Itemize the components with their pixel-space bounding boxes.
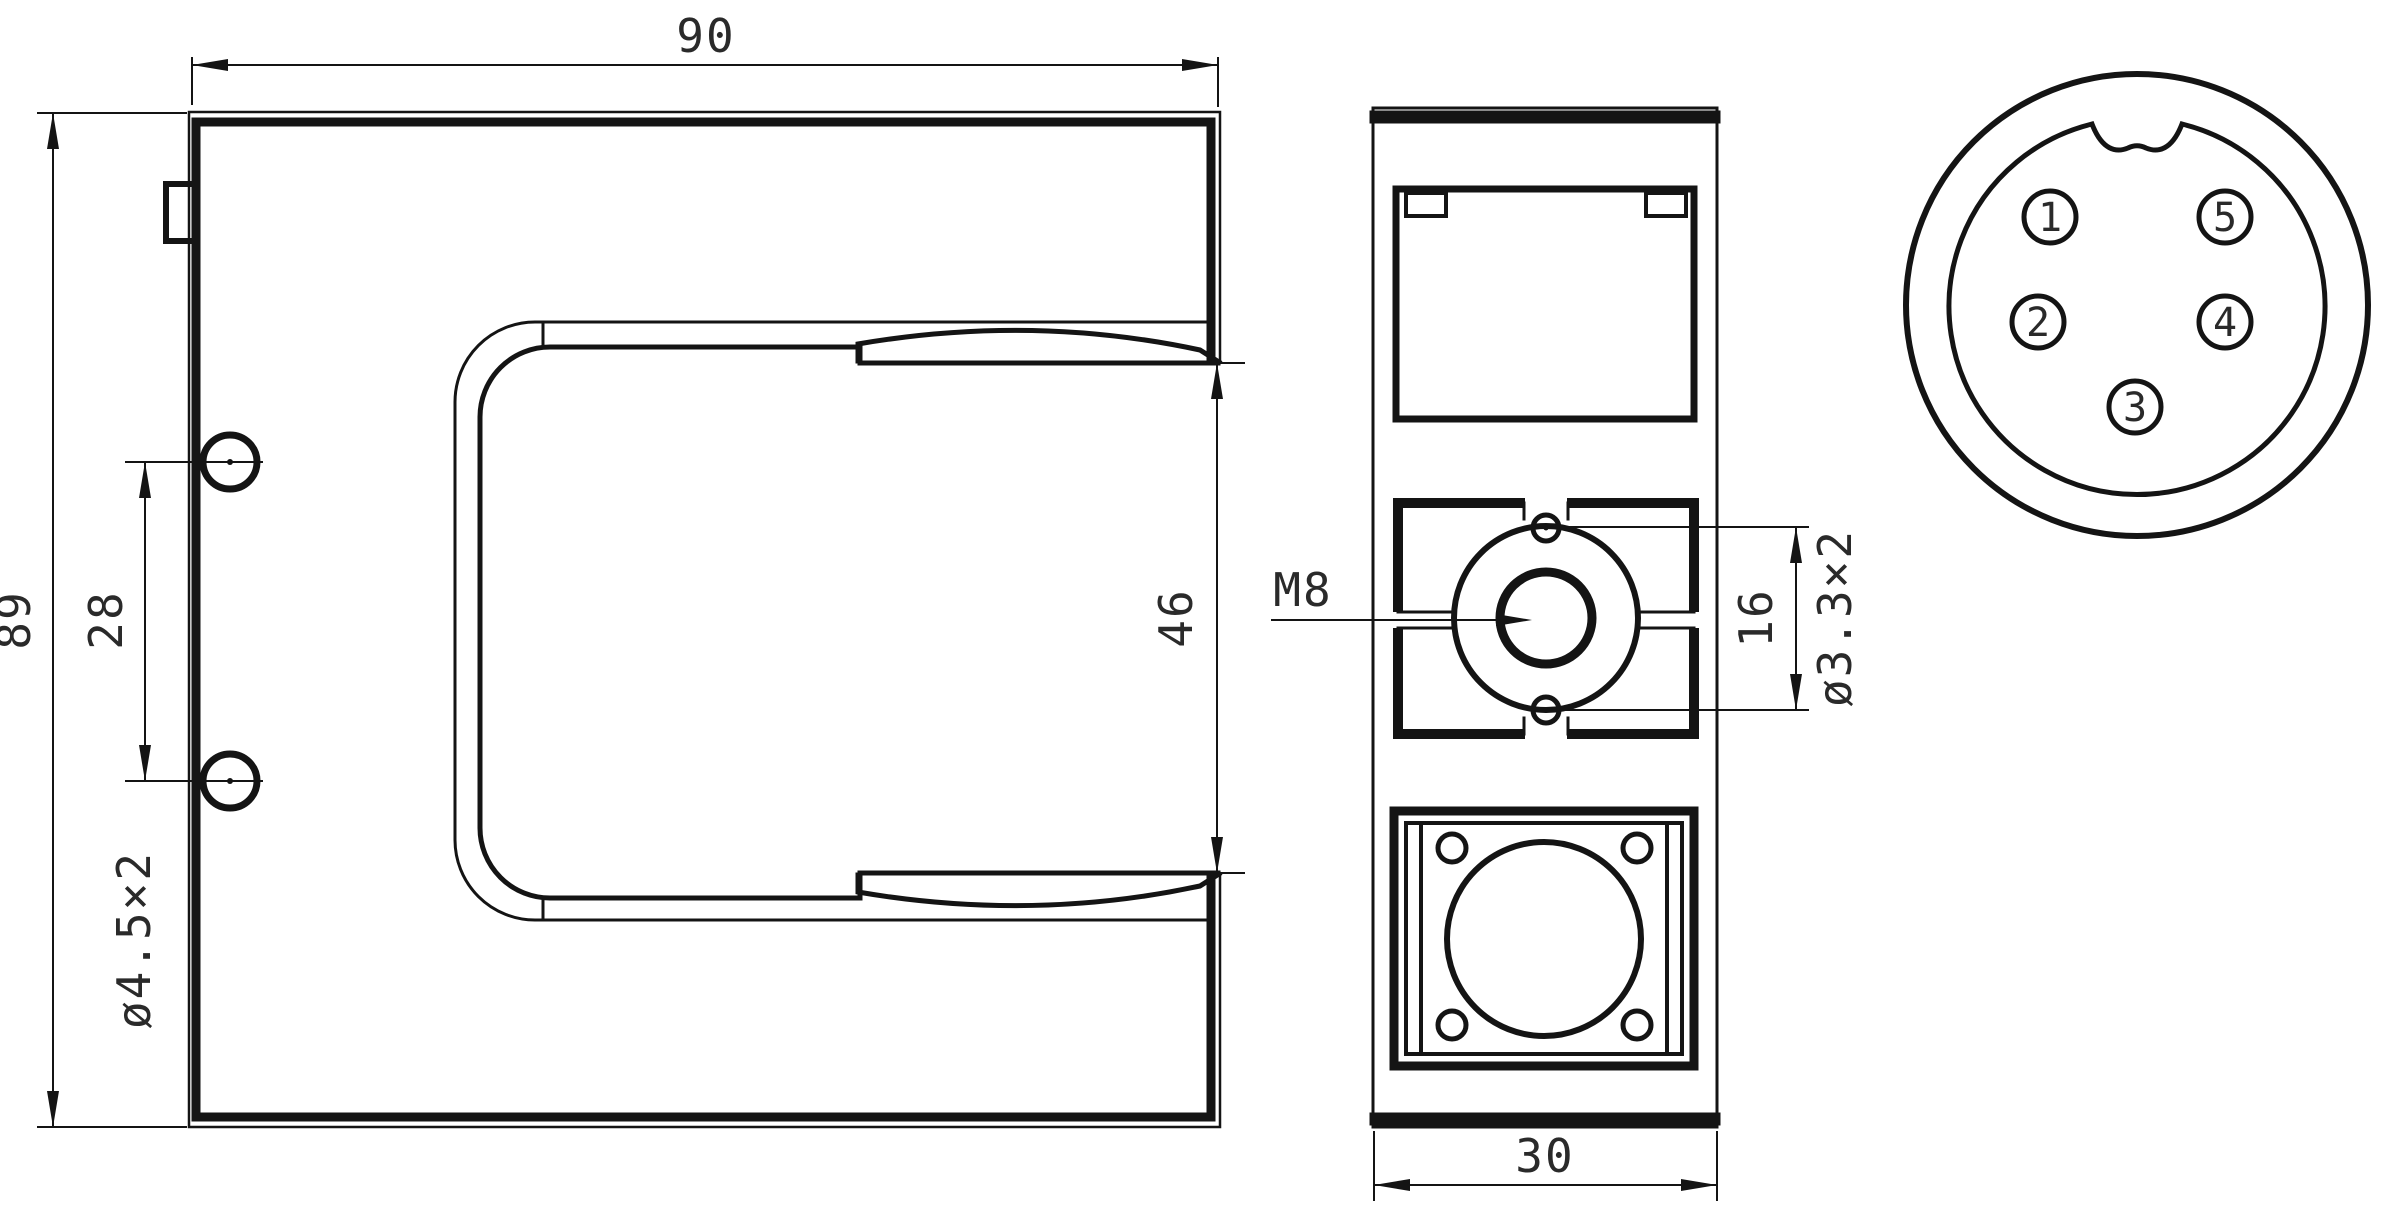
dim-46: 46	[1149, 363, 1244, 873]
connector-pinout-view: 1 5 2 4 3	[1906, 74, 2368, 536]
dim-28-label: 28	[79, 590, 133, 649]
pin-5-label: 5	[2213, 195, 2237, 241]
dim-28-arrow-top	[139, 462, 151, 498]
side-connector-barrel	[1447, 842, 1641, 1036]
side-mounting-block	[1398, 503, 1694, 734]
callout-m8-label: M8	[1273, 563, 1332, 617]
connector-inner-circle-keyway	[1949, 124, 2325, 495]
side-upper-notch-left	[1406, 193, 1446, 216]
pin-2-label: 2	[2026, 300, 2050, 346]
dim-30-arrow-right	[1681, 1179, 1717, 1191]
callout-hole-front-label: ø4.5×2	[107, 851, 161, 1029]
pin-1-label: 1	[2038, 195, 2062, 241]
dim-90-arrow-right	[1182, 59, 1218, 71]
dim-16-label: 16	[1729, 588, 1783, 647]
side-upper-window	[1396, 189, 1694, 419]
dim-16-arrow-bottom	[1790, 674, 1802, 710]
dim-90-arrow-left	[192, 59, 228, 71]
front-slot-contour	[480, 347, 1218, 898]
side-screw-hole-br	[1623, 1011, 1651, 1039]
front-lens-bottom	[858, 874, 1219, 906]
dim-16: 16	[1562, 527, 1808, 710]
side-screw-hole-tl	[1438, 834, 1466, 862]
connector-pin-5: 5	[2199, 191, 2251, 243]
side-view	[1373, 108, 1717, 1127]
dim-16-arrow-top	[1790, 527, 1802, 563]
side-upper-notch-right	[1646, 193, 1686, 216]
dim-46-arrow-bottom	[1211, 837, 1223, 873]
callout-m8-arrow	[1496, 614, 1532, 626]
dim-89-arrow-top	[47, 113, 59, 149]
dim-46-label: 46	[1149, 588, 1203, 647]
connector-pin-2: 2	[2012, 296, 2064, 348]
dim-89-arrow-bottom	[47, 1091, 59, 1127]
pin-3-label: 3	[2123, 385, 2147, 431]
dim-30-arrow-left	[1374, 1179, 1410, 1191]
side-connector-receptacle	[1394, 811, 1694, 1066]
front-body-outer-outline	[189, 112, 1220, 1127]
dim-28-arrow-bottom	[139, 745, 151, 781]
dim-30: 30	[1374, 1129, 1717, 1200]
dimension-drawing: 90 89 28 ø4.5×2 46	[0, 0, 2400, 1227]
front-slot-groove	[455, 322, 1208, 920]
side-screw-hole-tr	[1623, 834, 1651, 862]
side-screw-hole-bl	[1438, 1011, 1466, 1039]
dim-89-label: 89	[0, 590, 41, 649]
pin-4-label: 4	[2213, 300, 2237, 346]
connector-pin-1: 1	[2024, 191, 2076, 243]
connector-pin-3: 3	[2109, 381, 2161, 433]
side-nut-outer-circle	[1454, 526, 1638, 710]
front-body-inner-outline	[196, 122, 1211, 1117]
dim-90-label: 90	[676, 9, 735, 63]
dim-28: 28	[79, 462, 151, 781]
front-lens-top	[858, 330, 1219, 362]
callout-hole-side-label: ø3.3×2	[1808, 529, 1862, 707]
dim-90: 90	[192, 9, 1218, 106]
connector-pin-4: 4	[2199, 296, 2251, 348]
dim-46-arrow-top	[1211, 363, 1223, 399]
front-view	[126, 112, 1220, 1127]
drawing-canvas: 90 89 28 ø4.5×2 46	[0, 0, 2400, 1227]
dim-30-label: 30	[1515, 1129, 1574, 1183]
front-left-tab	[166, 184, 191, 241]
